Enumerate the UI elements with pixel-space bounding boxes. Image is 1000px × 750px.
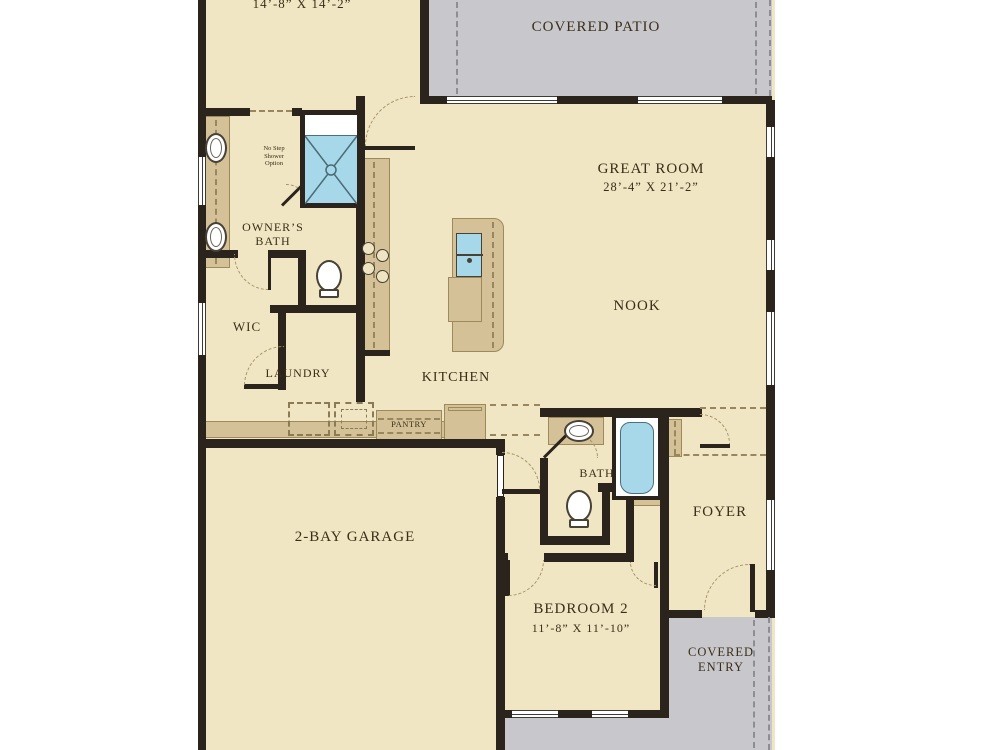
patio-edge-dash-1 (755, 2, 757, 94)
shower-note: No Step Shower Option (256, 145, 292, 168)
wall-bath2-west (540, 458, 548, 544)
stove-burner-1 (362, 242, 375, 255)
kitchen-counter-dash (373, 162, 375, 348)
shower-x-icon (305, 136, 357, 204)
island-sink (456, 233, 482, 277)
front-door-leaf (750, 564, 755, 612)
toilet-2-base (569, 519, 589, 528)
patio-slider-window-2 (638, 96, 722, 104)
island-sink-divider (457, 254, 483, 256)
covered-patio-label: COVERED PATIO (532, 19, 661, 37)
great-room-label: GREAT ROOM (598, 161, 705, 179)
patio-slider-window-1 (447, 96, 557, 104)
dryer-inner-outline (341, 409, 367, 429)
floor-plan: 14’-8” X 14’-2” COVERED PATIO GREAT ROOM… (0, 0, 1000, 750)
wall-bedroom2-north-b (544, 553, 632, 562)
toilet-1-bowl (316, 260, 342, 292)
bathtub (612, 414, 662, 500)
opening-hall-top (490, 404, 540, 406)
stove-burner-3 (362, 262, 375, 275)
wall-foyer-south-b (755, 610, 775, 618)
foyer-closet-door-leaf (700, 444, 730, 448)
fridge-cabinet-door-line (448, 407, 482, 411)
toilet-2-bowl (566, 490, 592, 522)
wall-foyer-closet-top (666, 408, 702, 417)
wic-label: WIC (233, 319, 261, 334)
garage-label: 2-BAY GARAGE (295, 529, 415, 547)
wic-window-left-2 (198, 303, 206, 355)
entry-edge-dash-2 (768, 617, 770, 750)
greatroom-window-2 (766, 240, 775, 270)
entry-sidewalk (496, 718, 772, 750)
foyer-window (766, 500, 775, 570)
bathtub-basin (620, 422, 654, 494)
wall-garage-north (198, 439, 505, 448)
owners-bath-sink-1 (205, 133, 227, 163)
bath-window-left-1 (198, 157, 206, 205)
wic-door-leaf (268, 254, 271, 290)
dishwasher (448, 277, 482, 322)
bedroom2-dims: 11’-8” X 11’-10” (532, 621, 630, 635)
wall-bath2-south (540, 536, 610, 545)
covered-entry-label: COVERED ENTRY (676, 645, 766, 675)
shower-pan (305, 135, 357, 203)
pantry-label: PANTRY (391, 419, 427, 429)
wall-foyer-south-a (660, 610, 702, 618)
foyer-closet-dash (674, 421, 676, 455)
washer-outline (288, 402, 330, 436)
stove-burner-4 (376, 270, 389, 283)
owners-suite-door-leaf (365, 146, 415, 150)
toilet-1-base (319, 289, 339, 298)
wall-patio-left (420, 0, 429, 100)
bath2-label: BATH (579, 466, 614, 480)
greatroom-window-3 (766, 312, 775, 385)
foyer-label: FOYER (693, 504, 747, 522)
wall-wc-left (298, 250, 306, 313)
laundry-label: LAUNDRY (265, 366, 330, 380)
shower (300, 110, 362, 208)
bedroom2-window-2 (592, 710, 628, 718)
entry-edge-dash-1 (753, 620, 755, 748)
nook-label: NOOK (613, 298, 660, 316)
stove-burner-2 (376, 249, 389, 262)
island-dash-line (492, 222, 494, 348)
wall-toilet-nook (602, 490, 610, 545)
owners-bath-label: OWNER’S BATH (237, 220, 309, 248)
opening-suite-bath (250, 110, 292, 112)
great-room-dims: 28’-4” X 21’-2” (603, 180, 699, 195)
opening-nook-foyer (700, 407, 766, 409)
wall-bath-wic-b (268, 250, 302, 258)
greatroom-window-1 (766, 127, 775, 157)
bath2-sink (564, 420, 594, 442)
wall-suite-bath-a (198, 108, 250, 116)
bedroom2-label: BEDROOM 2 (533, 601, 628, 619)
opening-foyer-top (674, 454, 766, 456)
bedroom2-window-1 (512, 710, 558, 718)
patio-edge-dash-2 (769, 0, 771, 96)
kitchen-label: KITCHEN (422, 370, 490, 387)
opening-hall-bottom (490, 434, 540, 436)
pantry-shelf-dash2 (378, 432, 440, 434)
island-sink-faucet (467, 258, 472, 263)
owners-bath-sink-2 (205, 222, 227, 252)
owners-suite-dims: 14’-8” X 14’-2” (253, 0, 352, 11)
covered-patio-slab (429, 0, 772, 96)
patio-column-dash (456, 2, 458, 94)
